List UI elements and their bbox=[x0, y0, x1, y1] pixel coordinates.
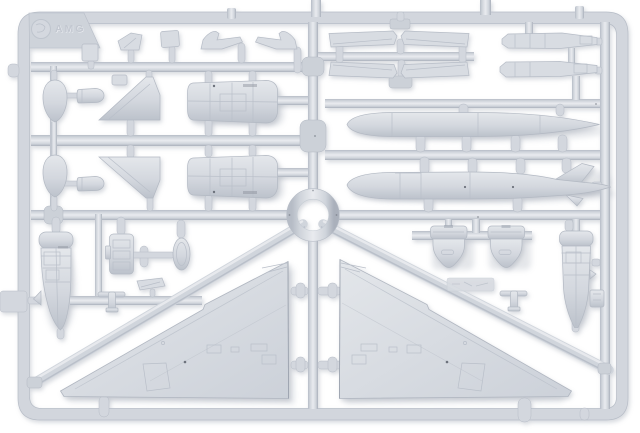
part-cockpit-tub bbox=[106, 234, 134, 274]
part-number-emboss bbox=[447, 278, 494, 291]
part-rear-fuselage-half-lower bbox=[188, 156, 278, 199]
part-nose-cone-upper bbox=[43, 80, 67, 122]
part-elevon-4 bbox=[401, 62, 469, 78]
photo-model-kit-sprue: AMG AMG bbox=[0, 0, 640, 433]
part-vertical-stabilizer-lower bbox=[99, 157, 160, 198]
part-forward-fuselage-left bbox=[34, 232, 74, 330]
part-small-pod-lower bbox=[77, 177, 104, 192]
brand-emblem-icon bbox=[32, 20, 51, 39]
part-small-bracket bbox=[590, 290, 604, 307]
part-small-flat-piece bbox=[137, 278, 165, 290]
sprue: AMG AMG bbox=[0, 0, 628, 422]
part-elevon-3 bbox=[329, 62, 397, 78]
part-pylon-right bbox=[500, 291, 527, 311]
sprue-ring bbox=[287, 189, 340, 242]
part-small-pod-upper bbox=[77, 89, 104, 104]
part-small-plate-2 bbox=[82, 44, 98, 61]
brand-emboss-text: AMG bbox=[55, 23, 86, 35]
part-leading-edge-strip-2 bbox=[500, 62, 597, 78]
part-small-plate-1 bbox=[118, 33, 142, 50]
sprue-photo-svg: AMG AMG bbox=[0, 0, 640, 433]
part-elevon-2 bbox=[401, 31, 469, 47]
part-intake-fairing-right bbox=[256, 31, 298, 49]
part-intake-fairing-left bbox=[201, 31, 243, 49]
part-small-block bbox=[160, 30, 179, 47]
part-small-plate-3 bbox=[112, 75, 127, 85]
part-rear-fuselage-half-upper bbox=[188, 81, 278, 124]
part-vertical-stabilizer-upper bbox=[99, 77, 160, 120]
part-nose-cone-lower bbox=[43, 155, 67, 197]
part-leading-edge-strip-1 bbox=[502, 33, 597, 49]
part-oval-hatch bbox=[173, 238, 190, 270]
part-elevon-1 bbox=[329, 31, 397, 47]
part-delta-wing-left bbox=[61, 262, 289, 399]
